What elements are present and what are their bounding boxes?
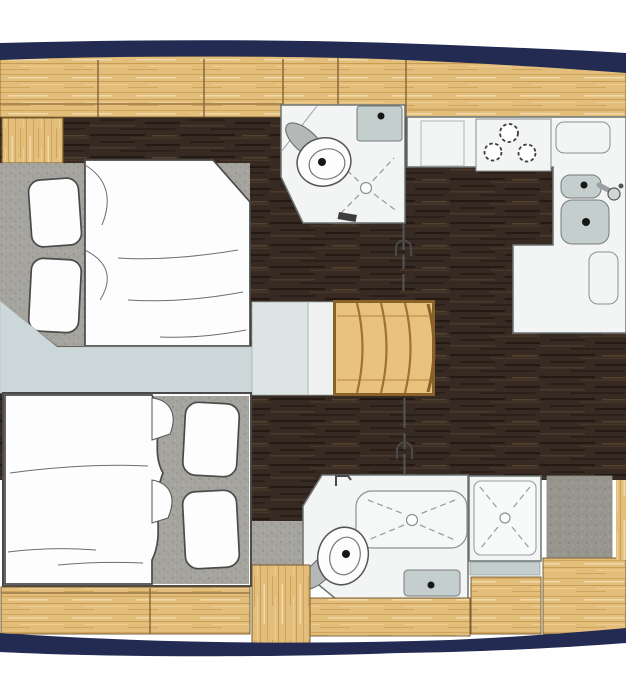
stove-burner (519, 145, 536, 162)
hull-locker (543, 558, 626, 634)
yacht-floorplan-diagram (0, 0, 626, 700)
counter-locker-lid (589, 252, 618, 304)
aft-berth-duvet (5, 395, 163, 584)
hull-locker (471, 577, 541, 634)
vberth-mattress (85, 160, 250, 346)
hull-locker (310, 598, 470, 636)
counter-hatch (556, 122, 610, 153)
pillow (28, 177, 83, 247)
basin-drain (378, 113, 385, 120)
shower-drain-icon (500, 513, 510, 523)
locker-column (252, 565, 310, 645)
stove-burner (500, 124, 518, 142)
shower-drain-icon (361, 183, 372, 194)
landing-panel (252, 302, 308, 395)
companionway-stairs (333, 300, 435, 396)
hull-locker (1, 587, 250, 634)
aft-seat (547, 476, 612, 557)
side-locker (2, 118, 63, 163)
carpet-patch (251, 521, 308, 566)
companionway (252, 300, 435, 396)
aft-shower (469, 476, 541, 575)
forward-head (280, 105, 405, 223)
faucet-tap (608, 188, 620, 200)
landing-panel (308, 302, 337, 395)
washbasin (357, 106, 402, 141)
shower-drain-icon (407, 515, 418, 526)
floorplan-page (0, 0, 626, 700)
pillow (182, 490, 240, 570)
pillow (28, 258, 82, 334)
shower-sill (470, 562, 540, 575)
locker-column (616, 480, 626, 560)
pillow (182, 402, 240, 478)
stove-burner (485, 144, 502, 161)
